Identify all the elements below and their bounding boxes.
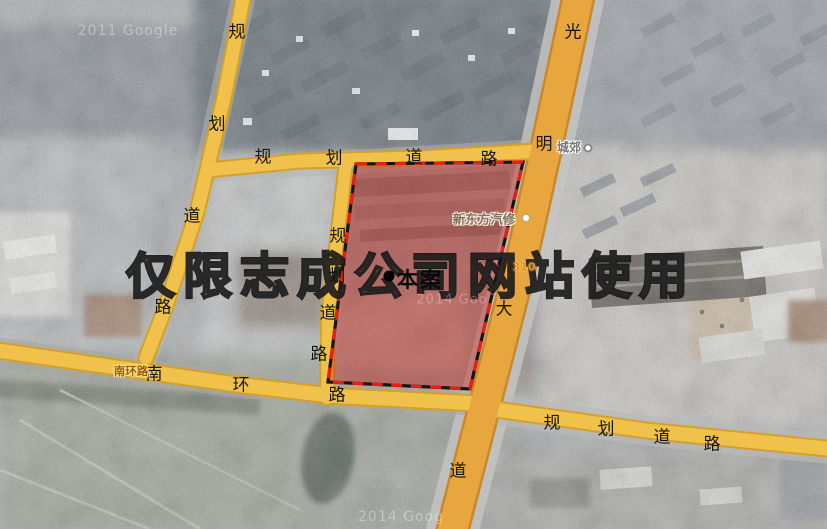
site-label: 本案 <box>397 264 443 294</box>
planned-road-top-char-0: 规 <box>255 150 272 167</box>
site-marker-dot <box>384 271 395 282</box>
guangming-avenue-char-0: 光 <box>565 25 582 42</box>
planned-road-top-char-2: 道 <box>406 150 423 167</box>
planned-road-bottom-right-char-2: 道 <box>654 430 671 447</box>
south-ring-road-char-2: 路 <box>329 388 346 405</box>
town-poi-marker <box>584 144 593 153</box>
planned-road-top-char-1: 划 <box>326 151 343 168</box>
planned-road-middle-vertical-char-0: 规 <box>330 229 347 246</box>
google-watermark-center: 2014 Goo <box>416 293 487 308</box>
route-number-310: 310 <box>513 261 536 274</box>
planned-road-left-diagonal-char-0: 规 <box>229 25 246 42</box>
planned-road-bottom-right-char-0: 规 <box>544 416 561 433</box>
roadname-label-nanhuanlu: 南环路 <box>114 363 149 379</box>
guangming-avenue-char-1: 明 <box>536 137 553 154</box>
planned-road-top-char-3: 路 <box>481 152 498 169</box>
map-labels-layer: 仅限志成公司网站使用 本案 规划道路规划道路规划道路南环路规划道路光明大道城郊新… <box>0 0 827 529</box>
business-label-xindongfang: 新东方汽修 <box>453 209 516 228</box>
google-watermark-bottom: 2014 Goog <box>358 509 444 525</box>
planned-road-bottom-right-char-1: 划 <box>598 422 615 439</box>
guangming-avenue-char-2: 大 <box>496 302 513 319</box>
guangming-avenue-char-3: 道 <box>450 464 467 481</box>
south-ring-road-char-1: 环 <box>233 378 250 395</box>
planned-road-left-diagonal-char-2: 道 <box>184 209 201 226</box>
planned-road-left-diagonal-char-3: 路 <box>155 300 172 317</box>
planned-road-middle-vertical-char-2: 道 <box>320 306 337 323</box>
satellite-map-image: 仅限志成公司网站使用 本案 规划道路规划道路规划道路南环路规划道路光明大道城郊新… <box>0 0 827 529</box>
planned-road-middle-vertical-char-1: 划 <box>329 269 346 286</box>
planned-road-left-diagonal-char-1: 划 <box>209 117 226 134</box>
planned-road-middle-vertical-char-3: 路 <box>311 347 328 364</box>
planned-road-bottom-right-char-3: 路 <box>704 437 721 454</box>
business-poi-marker <box>522 214 530 222</box>
town-label-chengjiao: 城郊 <box>557 139 581 156</box>
google-watermark-top-left: 2011 Google <box>78 23 178 39</box>
